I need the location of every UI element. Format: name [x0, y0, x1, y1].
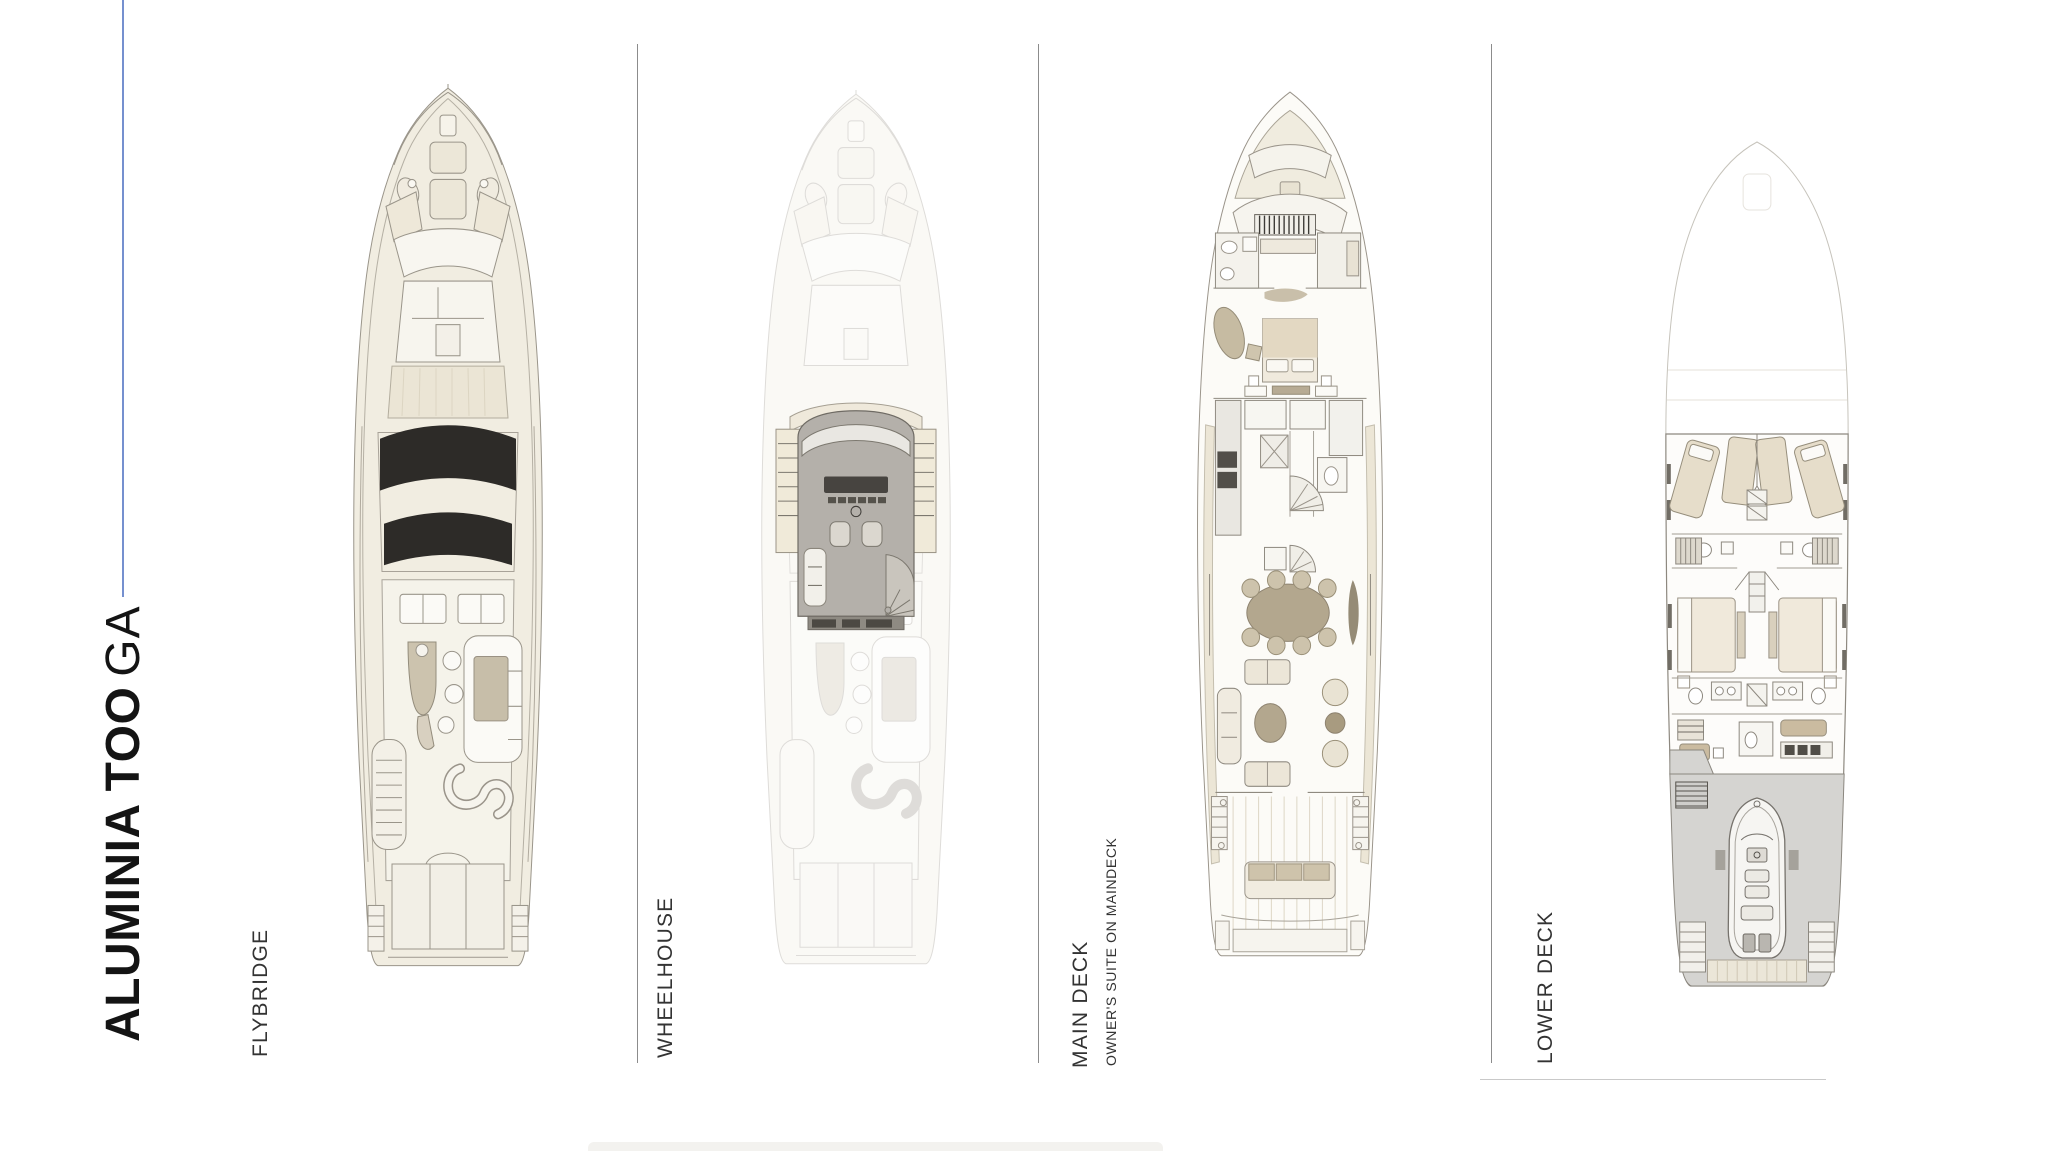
bow-sunpad [430, 142, 466, 173]
helm-console [824, 476, 888, 492]
lower-deck-plan [1652, 134, 1862, 996]
stair-hatch [1812, 538, 1838, 564]
anchor-hatch [440, 115, 456, 136]
section-divider-2 [1038, 44, 1039, 1063]
side-steps [512, 905, 528, 951]
wheelhouse-unit [776, 403, 936, 630]
forward-twin-cabins [1668, 434, 1845, 520]
section-divider-3 [1491, 44, 1492, 1063]
salon-sofa [1217, 688, 1241, 764]
deck-band [388, 366, 508, 418]
wheelhouse-plan [750, 90, 962, 974]
main-deck-plan [1186, 88, 1394, 966]
tender-boat [1728, 798, 1785, 958]
vent-grille [1255, 215, 1316, 235]
dining-table [1247, 584, 1329, 641]
galley [1215, 400, 1241, 535]
bar-sink [416, 644, 428, 656]
lounge-table [436, 325, 460, 356]
pilothouse-sofa [804, 548, 826, 606]
bar-stool [438, 717, 454, 734]
wc [1689, 688, 1703, 704]
wc [1811, 688, 1825, 704]
appliance [1217, 472, 1237, 488]
bow-sunpad [430, 179, 466, 218]
cropped-edge-artifact [588, 1142, 1163, 1151]
foredeck-table [1280, 182, 1300, 195]
accent-line [122, 0, 124, 597]
page: ALUMINIA TOOGA [0, 0, 2048, 1151]
bottom-hairline [1480, 1079, 1826, 1080]
yacht-title-bold: ALUMINIA TOO [97, 687, 150, 1042]
ottoman [1255, 704, 1286, 743]
yacht-title-light: GA [97, 605, 150, 676]
round-table [1325, 713, 1345, 733]
bar-stool [443, 651, 461, 670]
corridor-console [1749, 572, 1765, 612]
section-divider-1 [637, 44, 638, 1063]
console [1261, 239, 1316, 253]
armchair [1322, 679, 1348, 706]
side-table [1246, 344, 1262, 361]
ghost-bow [1666, 142, 1848, 434]
garage-stairs [1809, 922, 1835, 972]
wheelhouse-label: WHEELHOUSE [655, 897, 676, 1058]
main-deck-label: MAIN DECK [1070, 941, 1091, 1068]
garage-stairs [1680, 922, 1706, 972]
yacht-title: ALUMINIA TOOGA [100, 605, 148, 1042]
swim-platform [1233, 929, 1347, 951]
flybridge-plan [342, 84, 554, 976]
dinette-table [474, 657, 508, 721]
side-stair [776, 429, 800, 552]
lower-deck-label: LOWER DECK [1535, 911, 1556, 1064]
side-stair [912, 429, 936, 552]
bed-bench [1272, 386, 1309, 394]
stairs [372, 740, 406, 850]
stair-hatch [1676, 538, 1702, 564]
side-stairs [1212, 797, 1228, 850]
ghost-hatch [1743, 174, 1771, 210]
helm-seat [830, 522, 850, 547]
armchair [1322, 740, 1348, 767]
bar-stool [445, 685, 463, 704]
side-steps [368, 905, 384, 951]
appliance [1217, 451, 1237, 467]
side-stairs [1353, 797, 1369, 850]
helm-seat [862, 522, 882, 547]
flybridge-label: FLYBRIDGE [250, 929, 271, 1057]
main-deck-sublabel: OWNER'S SUITE ON MAINDECK [1104, 838, 1118, 1066]
stern-sunpads [392, 864, 504, 949]
